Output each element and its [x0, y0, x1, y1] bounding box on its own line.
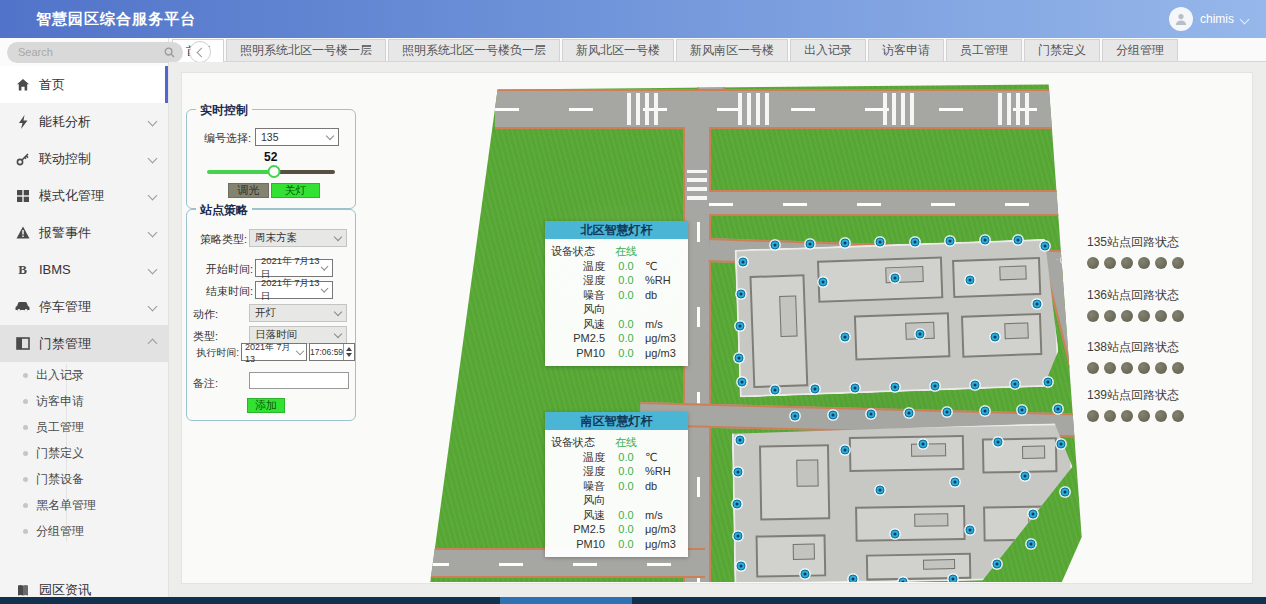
pole-metric-row: 噪音0.0db	[551, 479, 682, 494]
metric-value: 0.0	[609, 288, 643, 303]
sidebar-item-3[interactable]: 模式化管理	[0, 177, 168, 214]
metric-value	[609, 493, 643, 508]
sidebar-collapse-button[interactable]	[189, 41, 211, 63]
metric-label: 温度	[551, 259, 609, 274]
bullet-icon	[23, 425, 28, 430]
light-pole-marker-icon[interactable]	[891, 274, 900, 283]
chevron-down-icon	[148, 154, 158, 164]
ibms-icon: B	[15, 262, 30, 277]
user-name: chimis	[1200, 12, 1234, 26]
metric-unit: db	[643, 479, 682, 494]
pole-panel-title: 南区智慧灯杆	[545, 412, 688, 430]
exec-time-stepper[interactable]: 17:06:59	[309, 343, 355, 361]
chevron-down-icon	[1240, 14, 1250, 24]
light-pole-marker-icon[interactable]	[1011, 380, 1020, 389]
metric-label: 噪音	[551, 288, 609, 303]
end-time-label: 结束时间:	[197, 284, 253, 299]
light-pole-marker-icon[interactable]	[916, 330, 925, 339]
user-menu[interactable]: chimis	[1169, 7, 1248, 31]
light-pole-marker-icon[interactable]	[1033, 300, 1042, 309]
metric-label: 湿度	[551, 464, 609, 479]
metric-unit	[643, 493, 682, 508]
content-area: 实时控制 编号选择: 135 52 调光 关灯 站点策略	[169, 62, 1266, 604]
search-box[interactable]	[7, 42, 183, 63]
search-icon	[164, 47, 175, 58]
chevron-down-icon	[148, 228, 158, 238]
light-pole-marker-icon[interactable]	[905, 409, 914, 418]
smart-pole-panel-1: 南区智慧灯杆设备状态在线温度0.0℃湿度0.0%RH噪音0.0db风向风速0.0…	[545, 412, 688, 557]
circuit-status-dots	[1087, 362, 1247, 374]
bullet-icon	[23, 399, 28, 404]
metric-label: 风向	[551, 302, 609, 317]
sidebar-item-label: 能耗分析	[39, 113, 91, 131]
door-icon	[15, 336, 30, 351]
metric-value: 0.0	[609, 450, 643, 465]
pole-metric-row: 风速0.0m/s	[551, 317, 682, 332]
light-pole-marker-icon[interactable]	[841, 446, 850, 455]
metric-value: 在线	[609, 244, 643, 259]
map-road	[709, 190, 1085, 216]
metric-label: 风向	[551, 493, 609, 508]
metric-label: 设备状态	[551, 435, 609, 450]
search-input[interactable]	[18, 46, 160, 58]
number-select-value: 135	[261, 131, 279, 143]
metric-value: 0.0	[609, 522, 643, 537]
circuit-dot	[1172, 362, 1184, 374]
circuit-dot	[1155, 410, 1167, 422]
light-pole-marker-icon[interactable]	[1027, 540, 1036, 549]
metric-unit: μg/m3	[643, 522, 682, 537]
metric-value: 0.0	[609, 537, 643, 552]
light-pole-marker-icon[interactable]	[829, 411, 838, 420]
light-pole-marker-icon[interactable]	[966, 526, 975, 535]
dim-button[interactable]: 调光	[228, 183, 269, 198]
building	[961, 313, 1042, 358]
light-pole-marker-icon[interactable]	[734, 532, 743, 541]
light-pole-marker-icon[interactable]	[1041, 242, 1050, 251]
tab-3[interactable]: 新风北区一号楼	[562, 39, 674, 61]
sidebar-item-label: 模式化管理	[39, 187, 104, 205]
exec-time-value: 17:06:59	[310, 347, 343, 357]
building	[817, 256, 943, 302]
metric-unit	[643, 244, 682, 259]
pole-metric-row: 湿度0.0%RH	[551, 273, 682, 288]
metric-unit: ℃	[643, 259, 682, 274]
start-time-label: 开始时间:	[197, 262, 253, 277]
circuit-dot	[1138, 257, 1150, 269]
light-pole-marker-icon[interactable]	[1018, 406, 1027, 415]
sidebar-item-1[interactable]: 能耗分析	[0, 103, 168, 140]
sidebar-item-label: IBMS	[39, 262, 71, 277]
pole-metric-row: 设备状态在线	[551, 244, 682, 259]
station-strategy-group: 站点策略 策略类型: 周末方案 开始时间: 2021年 7月13日 结束时间: …	[186, 209, 356, 421]
light-pole-marker-icon[interactable]	[734, 468, 743, 477]
strategy-type-value: 周末方案	[255, 231, 297, 245]
slider-value: 52	[264, 150, 277, 164]
circuit-dot	[1138, 362, 1150, 374]
realtime-control-group: 实时控制 编号选择: 135 52 调光 关灯	[186, 109, 356, 209]
home-icon	[15, 77, 30, 92]
light-pole-marker-icon[interactable]	[739, 258, 748, 267]
bullet-icon	[23, 373, 28, 378]
circuit-dot	[1121, 257, 1133, 269]
app-title: 智慧园区综合服务平台	[36, 10, 196, 29]
sidebar-subitem-label: 门禁定义	[36, 445, 84, 462]
metric-unit: %RH	[643, 464, 682, 479]
sidebar-search-row	[0, 38, 168, 66]
metric-label: 湿度	[551, 273, 609, 288]
horizontal-scrollbar[interactable]	[0, 597, 1266, 604]
metric-unit: %RH	[643, 273, 682, 288]
circuit-dot	[1087, 257, 1099, 269]
strategy-type-label: 策略类型:	[189, 232, 247, 247]
circuit-status-label: 138站点回路状态	[1087, 339, 1247, 356]
chevron-down-icon	[296, 346, 304, 354]
grid-icon	[15, 188, 30, 203]
north-building-pad	[735, 238, 1060, 397]
light-pole-marker-icon[interactable]	[801, 570, 810, 579]
chevron-down-icon	[148, 191, 158, 201]
metric-unit: μg/m3	[643, 346, 682, 361]
light-pole-marker-icon[interactable]	[806, 240, 815, 249]
building	[849, 435, 965, 472]
sidebar-subitem-label: 出入记录	[36, 367, 84, 384]
light-pole-marker-icon[interactable]	[1014, 236, 1023, 245]
circuit-dot	[1087, 310, 1099, 322]
metric-unit: db	[643, 288, 682, 303]
metric-unit	[643, 435, 682, 450]
light-pole-marker-icon[interactable]	[994, 438, 1003, 447]
light-pole-marker-icon[interactable]	[951, 478, 960, 487]
sidebar-item-0[interactable]: 首页	[0, 66, 168, 103]
pole-metric-row: 噪音0.0db	[551, 288, 682, 303]
light-pole-marker-icon[interactable]	[911, 238, 920, 247]
circuit-dot	[1087, 410, 1099, 422]
metric-value	[609, 302, 643, 317]
sidebar-subitem-0[interactable]: 出入记录	[0, 362, 168, 388]
pole-metric-row: 风向	[551, 302, 682, 317]
metric-label: 风速	[551, 508, 609, 523]
light-pole-marker-icon[interactable]	[981, 236, 990, 245]
circuit-status-dots	[1087, 310, 1247, 322]
main-area: 首页照明系统北区一号楼一层照明系统北区一号楼负一层新风北区一号楼新风南区一号楼出…	[169, 38, 1266, 604]
light-pole-marker-icon[interactable]	[943, 408, 952, 417]
metric-unit: m/s	[643, 317, 682, 332]
circuit-status-label: 136站点回路状态	[1087, 287, 1247, 304]
key-icon	[15, 151, 30, 166]
light-pole-marker-icon[interactable]	[891, 383, 900, 392]
pole-metric-row: PM100.0μg/m3	[551, 537, 682, 552]
building	[854, 312, 951, 360]
sidebar-item-4[interactable]: 报警事件	[0, 214, 168, 251]
building	[749, 274, 808, 388]
metric-label: PM2.5	[551, 522, 609, 537]
light-off-button[interactable]: 关灯	[271, 183, 320, 198]
circuit-status-group-2: 138站点回路状态	[1087, 339, 1247, 374]
light-pole-marker-icon[interactable]	[867, 410, 876, 419]
tab-9[interactable]: 分组管理	[1102, 39, 1178, 61]
step-down-icon[interactable]	[346, 353, 352, 357]
bullet-icon	[23, 451, 28, 456]
start-time-select[interactable]: 2021年 7月13日	[255, 259, 333, 277]
park-map[interactable]	[425, 82, 1085, 582]
metric-label: PM10	[551, 537, 609, 552]
light-pole-marker-icon[interactable]	[737, 562, 746, 571]
alert-icon	[15, 225, 30, 240]
circuit-status-label: 135站点回路状态	[1087, 234, 1247, 251]
tab-5[interactable]: 出入记录	[790, 39, 866, 61]
sidebar-item-label: 门禁管理	[39, 335, 91, 353]
sidebar-subitem-label: 访客申请	[36, 393, 84, 410]
light-pole-marker-icon[interactable]	[851, 384, 860, 393]
building	[983, 505, 1069, 541]
bullet-icon	[23, 503, 28, 508]
exec-date-value: 2021年 7月13	[245, 341, 297, 364]
metric-value: 0.0	[609, 464, 643, 479]
bolt-icon	[15, 114, 30, 129]
circuit-dot	[1138, 310, 1150, 322]
metric-unit	[643, 302, 682, 317]
sidebar-subitem-3[interactable]: 门禁定义	[0, 440, 168, 466]
chevron-down-icon	[334, 232, 342, 240]
tab-6[interactable]: 访客申请	[868, 39, 944, 61]
light-pole-marker-icon[interactable]	[991, 333, 1000, 342]
sidebar-subitem-4[interactable]: 门禁设备	[0, 466, 168, 492]
light-pole-marker-icon[interactable]	[993, 560, 1002, 569]
end-time-select[interactable]: 2021年 7月13日	[255, 281, 333, 299]
sidebar-item-label: 联动控制	[39, 150, 91, 168]
building	[855, 505, 966, 542]
circuit-dot	[1155, 362, 1167, 374]
light-pole-marker-icon[interactable]	[966, 276, 975, 285]
end-time-value: 2021年 7月13日	[261, 277, 322, 303]
circuit-dot	[1121, 310, 1133, 322]
pole-metric-row: 温度0.0℃	[551, 259, 682, 274]
action-label: 动作:	[189, 307, 229, 322]
add-button[interactable]: 添加	[247, 398, 285, 413]
metric-value: 0.0	[609, 479, 643, 494]
metric-unit: m/s	[643, 508, 682, 523]
metric-unit: μg/m3	[643, 331, 682, 346]
light-pole-marker-icon[interactable]	[811, 385, 820, 394]
sidebar-item-7[interactable]: 门禁管理	[0, 325, 168, 362]
tab-8[interactable]: 门禁定义	[1024, 39, 1100, 61]
exec-date-select[interactable]: 2021年 7月13	[241, 343, 307, 361]
tab-2[interactable]: 照明系统北区一号楼负一层	[388, 39, 560, 61]
dimmer-slider-track[interactable]	[207, 170, 335, 174]
sidebar-item-label: 首页	[39, 76, 65, 94]
light-pole-marker-icon[interactable]	[1029, 510, 1038, 519]
scrollbar-thumb[interactable]	[500, 597, 632, 604]
pole-metric-row: PM100.0μg/m3	[551, 346, 682, 361]
light-pole-marker-icon[interactable]	[1054, 405, 1063, 414]
metric-value: 0.0	[609, 346, 643, 361]
light-pole-marker-icon[interactable]	[876, 238, 885, 247]
number-select[interactable]: 135	[255, 128, 339, 146]
light-pole-marker-icon[interactable]	[981, 407, 990, 416]
sidebar-subitem-label: 员工管理	[36, 419, 84, 436]
circuit-dot	[1138, 410, 1150, 422]
light-pole-marker-icon[interactable]	[1044, 378, 1053, 387]
circuit-dot	[1104, 410, 1116, 422]
tab-7[interactable]: 员工管理	[946, 39, 1022, 61]
note-input[interactable]	[249, 372, 349, 389]
sidebar-subitem-5[interactable]: 黑名单管理	[0, 492, 168, 518]
smart-pole-panel-0: 北区智慧灯杆设备状态在线温度0.0℃湿度0.0%RH噪音0.0db风向风速0.0…	[545, 221, 688, 366]
circuit-dot	[1104, 310, 1116, 322]
light-pole-marker-icon[interactable]	[737, 290, 746, 299]
light-pole-marker-icon[interactable]	[841, 333, 850, 342]
light-pole-marker-icon[interactable]	[841, 239, 850, 248]
light-pole-marker-icon[interactable]	[1061, 488, 1070, 497]
light-pole-marker-icon[interactable]	[736, 322, 745, 331]
sidebar: 首页能耗分析联动控制模式化管理报警事件BIBMS停车管理门禁管理出入记录访客申请…	[0, 38, 169, 604]
building	[756, 534, 827, 577]
light-pole-marker-icon[interactable]	[876, 486, 885, 495]
pole-metric-row: 风速0.0m/s	[551, 508, 682, 523]
chevron-down-icon	[326, 131, 334, 139]
light-pole-marker-icon[interactable]	[971, 381, 980, 390]
metric-value: 0.0	[609, 508, 643, 523]
pole-metric-row: PM2.50.0μg/m3	[551, 522, 682, 537]
person-icon	[1174, 12, 1188, 26]
light-pole-marker-icon[interactable]	[1057, 440, 1066, 449]
light-pole-marker-icon[interactable]	[1021, 472, 1030, 481]
sidebar-subitem-1[interactable]: 访客申请	[0, 388, 168, 414]
circuit-dot	[1104, 362, 1116, 374]
chevron-up-icon	[148, 339, 158, 349]
sidebar-subitem-label: 黑名单管理	[36, 497, 96, 514]
sidebar-item-6[interactable]: 停车管理	[0, 288, 168, 325]
sidebar-submenu: 出入记录访客申请员工管理门禁定义门禁设备黑名单管理分组管理	[0, 362, 168, 544]
circuit-status-dots	[1087, 410, 1247, 422]
metric-value: 0.0	[609, 273, 643, 288]
realtime-control-title: 实时控制	[196, 102, 252, 119]
sidebar-item-2[interactable]: 联动控制	[0, 140, 168, 177]
metric-value: 0.0	[609, 259, 643, 274]
circuit-status-group-1: 136站点回路状态	[1087, 287, 1247, 322]
pole-panel-body: 设备状态在线温度0.0℃湿度0.0%RH噪音0.0db风向风速0.0m/sPM2…	[545, 239, 688, 366]
station-strategy-title: 站点策略	[196, 202, 252, 219]
car-icon	[15, 299, 30, 314]
light-pole-marker-icon[interactable]	[891, 530, 900, 539]
chevron-down-icon	[148, 302, 158, 312]
pole-metric-row: 风向	[551, 493, 682, 508]
circuit-dot	[1172, 257, 1184, 269]
circuit-dot	[1121, 362, 1133, 374]
bullet-icon	[23, 477, 28, 482]
circuit-status-group-3: 139站点回路状态	[1087, 387, 1247, 422]
map-road-top	[495, 89, 1053, 129]
metric-value: 0.0	[609, 317, 643, 332]
metric-value: 0.0	[609, 331, 643, 346]
sidebar-item-label: 停车管理	[39, 298, 91, 316]
metric-unit: μg/m3	[643, 537, 682, 552]
chevron-down-icon	[148, 117, 158, 127]
circuit-dot	[1172, 410, 1184, 422]
chevron-left-icon	[196, 47, 206, 57]
light-pole-marker-icon[interactable]	[819, 278, 828, 287]
sidebar-subitem-label: 分组管理	[36, 523, 84, 540]
metric-value: 在线	[609, 435, 643, 450]
pole-metric-row: 温度0.0℃	[551, 450, 682, 465]
light-pole-marker-icon[interactable]	[946, 237, 955, 246]
metric-label: 噪音	[551, 479, 609, 494]
sidebar-subitem-label: 门禁设备	[36, 471, 84, 488]
metric-label: PM2.5	[551, 331, 609, 346]
circuit-dot	[1155, 310, 1167, 322]
circuit-dot	[1172, 310, 1184, 322]
strategy-type-select[interactable]: 周末方案	[249, 229, 347, 247]
kind-label: 类型:	[189, 329, 229, 344]
dimmer-slider-thumb[interactable]	[267, 165, 280, 178]
light-pole-marker-icon[interactable]	[735, 354, 744, 363]
metric-label: 风速	[551, 317, 609, 332]
south-building-pad	[732, 423, 1075, 585]
circuit-status-dots	[1087, 257, 1247, 269]
metric-unit: ℃	[643, 450, 682, 465]
sidebar-subitem-6[interactable]: 分组管理	[0, 518, 168, 544]
metric-label: PM10	[551, 346, 609, 361]
number-select-label: 编号选择:	[195, 131, 251, 146]
chevron-down-icon	[334, 307, 342, 315]
book-icon	[15, 583, 30, 598]
sidebar-item-5[interactable]: BIBMS	[0, 251, 168, 288]
step-up-icon[interactable]	[346, 347, 352, 351]
pole-metric-row: PM2.50.0μg/m3	[551, 331, 682, 346]
bullet-icon	[23, 529, 28, 534]
circuit-dot	[1087, 362, 1099, 374]
light-pole-marker-icon[interactable]	[733, 500, 742, 509]
circuit-dot	[1121, 410, 1133, 422]
sidebar-item-label: 报警事件	[39, 224, 91, 242]
light-pole-marker-icon[interactable]	[771, 241, 780, 250]
action-value: 开灯	[255, 306, 276, 320]
action-select[interactable]: 开灯	[249, 304, 347, 322]
chevron-down-icon	[334, 329, 342, 337]
pole-panel-title: 北区智慧灯杆	[545, 221, 688, 239]
sidebar-menu: 首页能耗分析联动控制模式化管理报警事件BIBMS停车管理门禁管理出入记录访客申请…	[0, 66, 168, 544]
light-pole-marker-icon[interactable]	[771, 386, 780, 395]
exec-time-label: 执行时间:	[187, 346, 239, 360]
chevron-down-icon	[148, 265, 158, 275]
light-pole-marker-icon[interactable]	[736, 436, 745, 445]
sidebar-subitem-2[interactable]: 员工管理	[0, 414, 168, 440]
circuit-status-label: 139站点回路状态	[1087, 387, 1247, 404]
circuit-dot	[1104, 257, 1116, 269]
time-stepper-arrows[interactable]	[343, 344, 354, 360]
tab-bar: 首页照明系统北区一号楼一层照明系统北区一号楼负一层新风北区一号楼新风南区一号楼出…	[169, 38, 1266, 62]
pole-metric-row: 设备状态在线	[551, 435, 682, 450]
light-pole-marker-icon[interactable]	[738, 378, 747, 387]
tab-4[interactable]: 新风南区一号楼	[676, 39, 788, 61]
metric-label: 设备状态	[551, 244, 609, 259]
light-pole-marker-icon[interactable]	[919, 440, 928, 449]
light-pole-marker-icon[interactable]	[791, 412, 800, 421]
pole-metric-row: 湿度0.0%RH	[551, 464, 682, 479]
pole-panel-body: 设备状态在线温度0.0℃湿度0.0%RH噪音0.0db风向风速0.0m/sPM2…	[545, 430, 688, 557]
tab-1[interactable]: 照明系统北区一号楼一层	[226, 39, 386, 61]
user-avatar	[1169, 7, 1193, 31]
light-pole-marker-icon[interactable]	[931, 382, 940, 391]
circuit-status-group-0: 135站点回路状态	[1087, 234, 1247, 269]
building	[759, 444, 830, 520]
note-label: 备注:	[189, 376, 229, 391]
metric-label: 温度	[551, 450, 609, 465]
circuit-dot	[1155, 257, 1167, 269]
app-window: 智慧园区综合服务平台 chimis	[0, 0, 1266, 604]
top-header: 智慧园区综合服务平台 chimis	[0, 0, 1266, 38]
